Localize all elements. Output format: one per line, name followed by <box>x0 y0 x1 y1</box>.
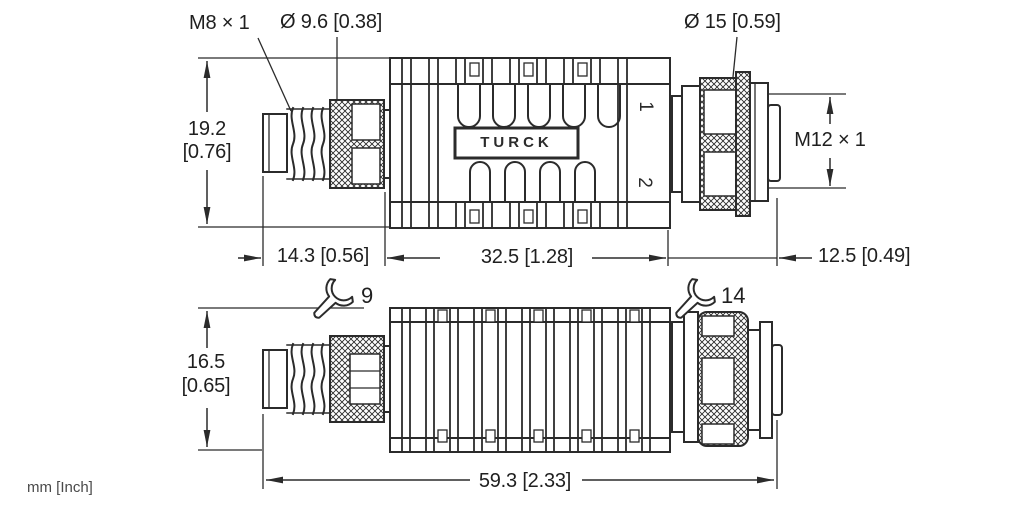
wrench-icon <box>304 277 355 328</box>
m8-thread-label: M8 × 1 <box>189 13 250 33</box>
units-note: mm [Inch] <box>27 480 93 495</box>
wrench-size-9-label: 9 <box>361 285 373 307</box>
dim-19-2-inch: [0.76] <box>180 141 235 163</box>
technical-drawing-page: M8 × 1 Ø 9.6 [0.38] Ø 15 [0.59] M12 × 1 … <box>0 0 1022 511</box>
diameter-15-label: Ø 15 [0.59] <box>684 12 781 32</box>
turck-logo-text: TURCK <box>455 134 578 152</box>
port-marker-1: 1 <box>636 101 655 112</box>
wrench-size-14-label: 14 <box>721 285 745 307</box>
dim-59-3: 59.3 [2.33] <box>476 470 574 492</box>
dim-32-5: 32.5 [1.28] <box>478 246 576 268</box>
dim-16-5-mm: 16.5 <box>184 351 228 373</box>
dim-19-2-mm: 19.2 <box>185 118 229 140</box>
m12-thread-label: M12 × 1 <box>791 129 868 151</box>
dim-16-5-inch: [0.65] <box>179 375 234 397</box>
port-marker-2: 2 <box>635 177 654 188</box>
dim-12-5: 12.5 [0.49] <box>818 246 910 266</box>
diameter-9-6-label: Ø 9.6 [0.38] <box>280 12 382 32</box>
dim-14-3: 14.3 [0.56] <box>277 246 369 266</box>
adapter-bottom-view <box>263 308 782 452</box>
